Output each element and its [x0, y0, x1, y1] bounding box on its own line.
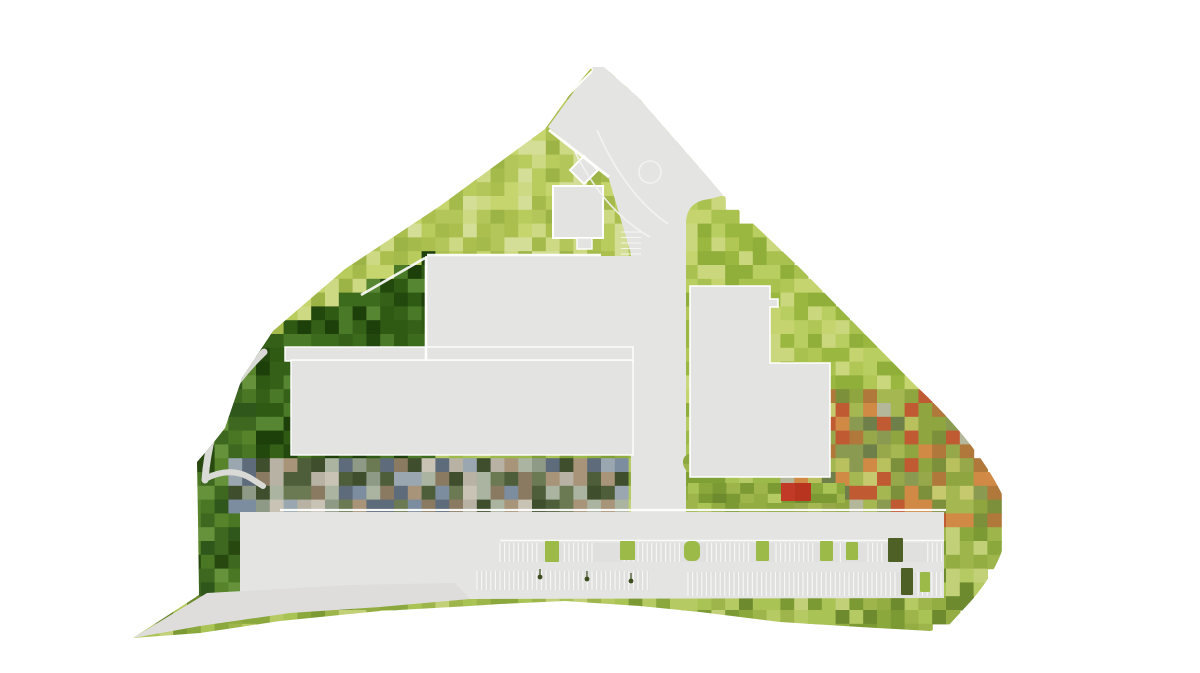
mosaic-cell — [146, 210, 160, 224]
mosaic-cell — [504, 86, 518, 100]
mosaic-cell — [587, 610, 601, 624]
mosaic-cell — [325, 472, 339, 486]
mosaic-cell — [339, 472, 353, 486]
mosaic-cell — [366, 265, 380, 279]
mosaic-cell — [394, 320, 408, 334]
mosaic-cell — [256, 389, 270, 403]
mosaic-cell — [228, 251, 242, 265]
mosaic-cell — [849, 375, 863, 389]
mosaic-cell — [435, 610, 449, 624]
mosaic-cell — [228, 306, 242, 320]
mosaic-cell — [891, 610, 905, 624]
mosaic-cell — [146, 196, 160, 210]
mosaic-cell — [836, 458, 850, 472]
mosaic-cell — [270, 293, 284, 307]
mosaic-cell — [477, 458, 491, 472]
mosaic-cell — [118, 500, 132, 514]
mosaic-cell — [159, 86, 173, 100]
building-west-wing-band — [285, 347, 633, 361]
mosaic-cell — [504, 458, 518, 472]
mosaic-cell — [504, 141, 518, 155]
mosaic-cell — [132, 486, 146, 500]
mosaic-cell — [284, 320, 298, 334]
mosaic-cell — [242, 279, 256, 293]
mosaic-cell — [132, 196, 146, 210]
mosaic-cell — [187, 444, 201, 458]
mosaic-cell — [159, 596, 173, 610]
mosaic-cell — [132, 348, 146, 362]
lamp-post-icon — [585, 577, 590, 582]
mosaic-cell — [256, 320, 270, 334]
mosaic-cell — [132, 113, 146, 127]
mosaic-cell — [201, 320, 215, 334]
mosaic-cell — [228, 362, 242, 376]
mosaic-cell — [284, 306, 298, 320]
mosaic-cell — [173, 168, 187, 182]
mosaic-cell — [477, 237, 491, 251]
mosaic-cell — [187, 500, 201, 514]
mosaic-cell — [422, 182, 436, 196]
mosaic-cell — [215, 237, 229, 251]
mosaic-cell — [228, 113, 242, 127]
mosaic-cell — [794, 279, 808, 293]
mosaic-cell — [905, 624, 919, 638]
mosaic-cell — [270, 113, 284, 127]
mosaic-cell — [491, 86, 505, 100]
mosaic-cell — [118, 403, 132, 417]
mosaic-cell — [905, 417, 919, 431]
mosaic-cell — [270, 403, 284, 417]
mosaic-cell — [836, 362, 850, 376]
mosaic-cell — [353, 86, 367, 100]
mosaic-cell — [532, 86, 546, 100]
mosaic-cell — [477, 624, 491, 638]
mosaic-cell — [242, 72, 256, 86]
mosaic-cell — [353, 251, 367, 265]
mosaic-cell — [546, 141, 560, 155]
mosaic-cell — [822, 596, 836, 610]
mosaic-cell — [284, 127, 298, 141]
mosaic-cell — [146, 403, 160, 417]
mosaic-cell — [201, 306, 215, 320]
mosaic-cell — [173, 210, 187, 224]
mosaic-cell — [739, 624, 753, 638]
mosaic-cell — [159, 265, 173, 279]
mosaic-cell — [408, 320, 422, 334]
mosaic-cell — [297, 458, 311, 472]
mosaic-cell — [753, 224, 767, 238]
mosaic-cell — [408, 210, 422, 224]
mosaic-cell — [394, 610, 408, 624]
mosaic-cell — [408, 182, 422, 196]
mosaic-cell — [118, 141, 132, 155]
mosaic-cell — [987, 555, 1001, 569]
mosaic-cell — [311, 72, 325, 86]
mosaic-cell — [146, 155, 160, 169]
mosaic-cell — [822, 610, 836, 624]
mosaic-cell — [228, 417, 242, 431]
mosaic-cell — [767, 237, 781, 251]
mosaic-cell — [242, 486, 256, 500]
mosaic-cell — [573, 472, 587, 486]
mosaic-cell — [946, 486, 960, 500]
mosaic-cell — [918, 610, 932, 624]
mosaic-cell — [449, 155, 463, 169]
mosaic-cell — [159, 486, 173, 500]
mosaic-cell — [256, 86, 270, 100]
mosaic-cell — [132, 155, 146, 169]
mosaic-cell — [435, 500, 449, 514]
mosaic-cell — [201, 182, 215, 196]
mosaic-cell — [256, 403, 270, 417]
mosaic-cell — [849, 362, 863, 376]
mosaic-cell — [339, 210, 353, 224]
mosaic-cell — [173, 417, 187, 431]
mosaic-cell — [932, 472, 946, 486]
mosaic-cell — [918, 472, 932, 486]
mosaic-cell — [173, 334, 187, 348]
mosaic-cell — [256, 306, 270, 320]
site-plan-map — [0, 0, 1200, 673]
mosaic-cell — [353, 224, 367, 238]
mosaic-cell — [146, 182, 160, 196]
mosaic-cell — [615, 458, 629, 472]
mosaic-cell — [546, 99, 560, 113]
mosaic-cell — [256, 431, 270, 445]
mosaic-cell — [173, 362, 187, 376]
mosaic-cell — [353, 265, 367, 279]
mosaic-cell — [215, 569, 229, 583]
mosaic-cell — [146, 99, 160, 113]
mosaic-cell — [435, 458, 449, 472]
mosaic-cell — [960, 513, 974, 527]
mosaic-cell — [380, 486, 394, 500]
mosaic-cell — [325, 127, 339, 141]
mosaic-cell — [408, 610, 422, 624]
mosaic-cell — [187, 362, 201, 376]
mosaic-cell — [877, 362, 891, 376]
mosaic-cell — [974, 582, 988, 596]
mosaic-cell — [339, 500, 353, 514]
mosaic-cell — [284, 486, 298, 500]
mosaic-cell — [201, 389, 215, 403]
mosaic-cell — [132, 168, 146, 182]
mosaic-cell — [325, 155, 339, 169]
mosaic-cell — [187, 334, 201, 348]
mosaic-cell — [242, 99, 256, 113]
mosaic-cell — [477, 168, 491, 182]
mosaic-cell — [228, 403, 242, 417]
mosaic-cell — [477, 182, 491, 196]
mosaic-cell — [339, 141, 353, 155]
mosaic-cell — [201, 348, 215, 362]
mosaic-cell — [863, 472, 877, 486]
mosaic-cell — [422, 472, 436, 486]
mosaic-cell — [118, 596, 132, 610]
mosaic-cell — [187, 265, 201, 279]
mosaic-cell — [159, 334, 173, 348]
mosaic-cell — [256, 99, 270, 113]
mosaic-cell — [146, 86, 160, 100]
mosaic-cell — [228, 389, 242, 403]
mosaic-cell — [215, 348, 229, 362]
mosaic-cell — [463, 237, 477, 251]
mosaic-cell — [546, 486, 560, 500]
mosaic-cell — [118, 458, 132, 472]
mosaic-cell — [256, 334, 270, 348]
mosaic-cell — [118, 444, 132, 458]
mosaic-cell — [215, 224, 229, 238]
mosaic-cell — [228, 624, 242, 638]
mosaic-cell — [366, 472, 380, 486]
mosaic-cell — [463, 486, 477, 500]
mosaic-cell — [132, 472, 146, 486]
mosaic-cell — [325, 458, 339, 472]
mosaic-cell — [808, 610, 822, 624]
mosaic-cell — [408, 472, 422, 486]
mosaic-cell — [918, 403, 932, 417]
mosaic-cell — [187, 237, 201, 251]
mosaic-cell — [256, 293, 270, 307]
mosaic-cell — [173, 251, 187, 265]
mosaic-cell — [739, 224, 753, 238]
mosaic-cell — [215, 127, 229, 141]
mosaic-cell — [394, 251, 408, 265]
mosaic-cell — [284, 99, 298, 113]
mosaic-cell — [311, 486, 325, 500]
mosaic-cell — [408, 196, 422, 210]
mosaic-cell — [780, 306, 794, 320]
mosaic-cell — [215, 541, 229, 555]
mosaic-cell — [242, 182, 256, 196]
mosaic-cell — [877, 500, 891, 514]
mosaic-cell — [187, 527, 201, 541]
mosaic-cell — [132, 224, 146, 238]
mosaic-cell — [256, 362, 270, 376]
mosaic-cell — [284, 72, 298, 86]
mosaic-cell — [159, 320, 173, 334]
mosaic-cell — [491, 210, 505, 224]
mosaic-cell — [146, 375, 160, 389]
mosaic-cell — [146, 596, 160, 610]
mosaic-cell — [325, 72, 339, 86]
mosaic-cell — [408, 306, 422, 320]
mosaic-cell — [228, 86, 242, 100]
mosaic-cell — [394, 99, 408, 113]
mosaic-cell — [201, 403, 215, 417]
mosaic-cell — [587, 486, 601, 500]
mosaic-cell — [159, 306, 173, 320]
mosaic-cell — [311, 279, 325, 293]
mosaic-cell — [132, 458, 146, 472]
mosaic-cell — [132, 513, 146, 527]
mosaic-cell — [960, 527, 974, 541]
mosaic-cell — [422, 127, 436, 141]
mosaic-cell — [532, 113, 546, 127]
mosaic-cell — [159, 458, 173, 472]
mosaic-cell — [504, 624, 518, 638]
mosaic-cell — [463, 168, 477, 182]
mosaic-cell — [780, 265, 794, 279]
mosaic-cell — [270, 99, 284, 113]
mosaic-cell — [698, 265, 712, 279]
mosaic-cell — [118, 210, 132, 224]
mosaic-cell — [891, 417, 905, 431]
mosaic-cell — [946, 596, 960, 610]
mosaic-cell — [201, 500, 215, 514]
mosaic-cell — [422, 113, 436, 127]
mosaic-cell — [877, 610, 891, 624]
mosaic-cell — [560, 500, 574, 514]
mosaic-cell — [215, 417, 229, 431]
mosaic-cell — [146, 348, 160, 362]
mosaic-cell — [532, 500, 546, 514]
mosaic-cell — [228, 265, 242, 279]
mosaic-cell — [132, 527, 146, 541]
mosaic-cell — [201, 293, 215, 307]
mosaic-cell — [215, 182, 229, 196]
mosaic-cell — [725, 210, 739, 224]
mosaic-cell — [449, 224, 463, 238]
mosaic-cell — [242, 141, 256, 155]
mosaic-cell — [974, 527, 988, 541]
mosaic-cell — [366, 500, 380, 514]
mosaic-cell — [394, 72, 408, 86]
mosaic-cell — [477, 486, 491, 500]
mosaic-cell — [767, 624, 781, 638]
mosaic-cell — [849, 334, 863, 348]
mosaic-cell — [932, 431, 946, 445]
mosaic-cell — [311, 113, 325, 127]
mosaic-cell — [325, 334, 339, 348]
mosaic-cell — [146, 444, 160, 458]
mosaic-cell — [270, 389, 284, 403]
mosaic-cell — [518, 155, 532, 169]
mosaic-cell — [987, 472, 1001, 486]
mosaic-cell — [339, 224, 353, 238]
mosaic-cell — [132, 293, 146, 307]
mosaic-cell — [463, 127, 477, 141]
mosaic-cell — [353, 127, 367, 141]
mosaic-cell — [684, 624, 698, 638]
mosaic-cell — [532, 486, 546, 500]
mosaic-cell — [408, 141, 422, 155]
mosaic-cell — [187, 569, 201, 583]
mosaic-cell — [146, 168, 160, 182]
mosaic-cell — [118, 155, 132, 169]
mosaic-cell — [932, 500, 946, 514]
mosaic-cell — [946, 513, 960, 527]
mosaic-cell — [504, 610, 518, 624]
mosaic-cell — [173, 513, 187, 527]
mosaic-cell — [435, 127, 449, 141]
mosaic-cell — [187, 224, 201, 238]
mosaic-cell — [311, 624, 325, 638]
mosaic-cell — [449, 127, 463, 141]
mosaic-cell — [449, 472, 463, 486]
mosaic-cell — [159, 582, 173, 596]
mosaic-cell — [974, 458, 988, 472]
mosaic-cell — [670, 610, 684, 624]
mosaic-cell — [297, 251, 311, 265]
mosaic-cell — [339, 168, 353, 182]
mosaic-cell — [146, 472, 160, 486]
mosaic-cell — [380, 72, 394, 86]
mosaic-cell — [146, 527, 160, 541]
mosaic-cell — [311, 210, 325, 224]
mosaic-cell — [422, 237, 436, 251]
mosaic-cell — [159, 541, 173, 555]
mosaic-cell — [173, 582, 187, 596]
mosaic-cell — [215, 334, 229, 348]
mosaic-cell — [366, 486, 380, 500]
mosaic-cell — [187, 210, 201, 224]
mosaic-cell — [946, 417, 960, 431]
mosaic-cell — [132, 265, 146, 279]
mosaic-cell — [960, 431, 974, 445]
mosaic-cell — [353, 279, 367, 293]
mosaic-cell — [532, 141, 546, 155]
mosaic-cell — [891, 472, 905, 486]
mosaic-cell — [849, 500, 863, 514]
mosaic-cell — [946, 458, 960, 472]
mosaic-cell — [353, 334, 367, 348]
mosaic-cell — [546, 610, 560, 624]
mosaic-cell — [560, 72, 574, 86]
mosaic-cell — [794, 610, 808, 624]
mosaic-cell — [463, 500, 477, 514]
mosaic-cell — [146, 417, 160, 431]
mosaic-cell — [504, 155, 518, 169]
mosaic-cell — [891, 458, 905, 472]
mosaic-cell — [449, 196, 463, 210]
mosaic-cell — [118, 113, 132, 127]
mosaic-cell — [422, 624, 436, 638]
mosaic-cell — [159, 141, 173, 155]
mosaic-cell — [146, 555, 160, 569]
mosaic-cell — [201, 555, 215, 569]
mosaic-cell — [987, 513, 1001, 527]
mosaic-cell — [601, 237, 615, 251]
site-area — [118, 60, 1002, 639]
mosaic-cell — [242, 265, 256, 279]
mosaic-cell — [339, 237, 353, 251]
mosaic-cell — [187, 541, 201, 555]
mosaic-cell — [270, 348, 284, 362]
mosaic-cell — [297, 224, 311, 238]
mosaic-cell — [905, 403, 919, 417]
mosaic-cell — [422, 486, 436, 500]
mosaic-cell — [849, 596, 863, 610]
mosaic-cell — [587, 500, 601, 514]
mosaic-cell — [849, 431, 863, 445]
mosaic-cell — [228, 182, 242, 196]
mosaic-cell — [325, 237, 339, 251]
mosaic-cell — [849, 624, 863, 638]
mosaic-cell — [504, 182, 518, 196]
mosaic-cell — [270, 265, 284, 279]
mosaic-cell — [353, 196, 367, 210]
mosaic-cell — [449, 624, 463, 638]
mosaic-cell — [118, 362, 132, 376]
mosaic-cell — [849, 486, 863, 500]
mosaic-cell — [491, 141, 505, 155]
mosaic-cell — [325, 320, 339, 334]
mosaic-cell — [532, 237, 546, 251]
mosaic-cell — [725, 265, 739, 279]
mosaic-cell — [284, 196, 298, 210]
mosaic-cell — [905, 486, 919, 500]
